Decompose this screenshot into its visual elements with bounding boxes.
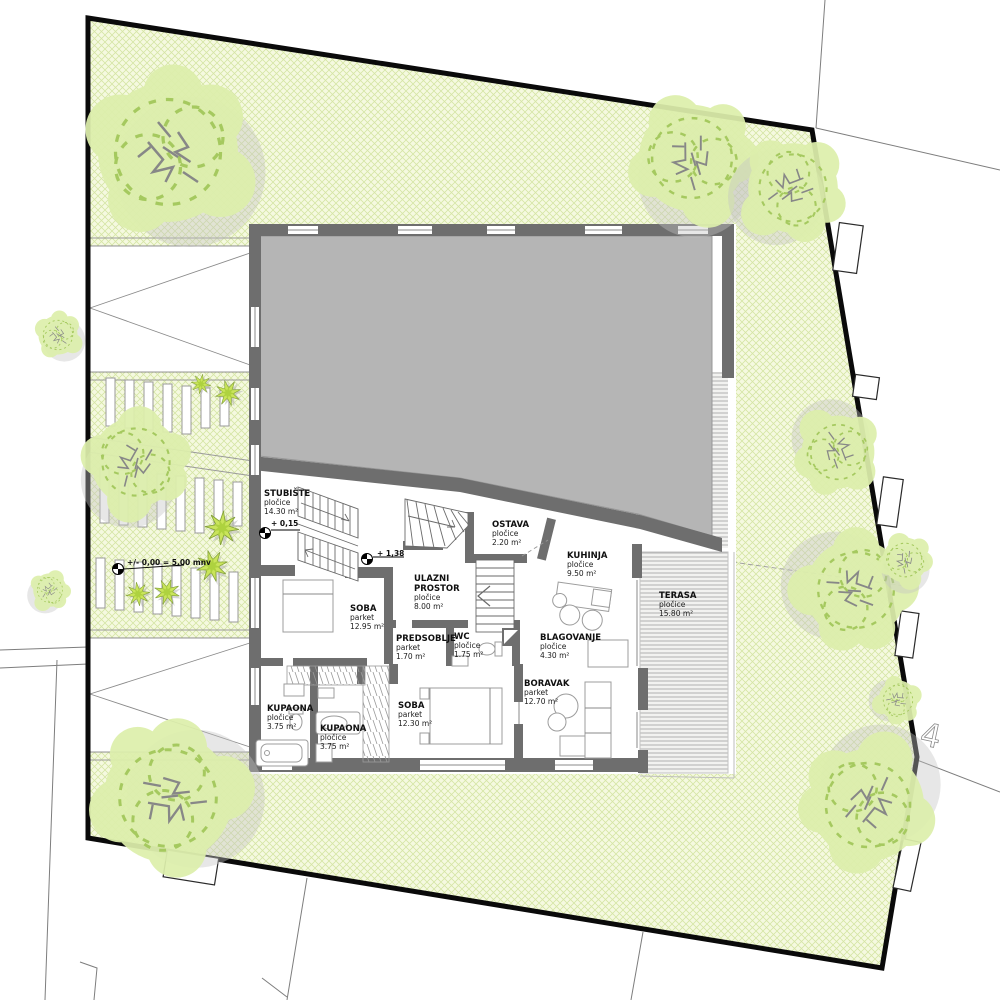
svg-text:ULAZNI: ULAZNI	[414, 574, 449, 584]
neighbor-building-roof	[88, 246, 253, 372]
room-finish: pločice	[264, 498, 291, 507]
svg-text:8.00 m²: 8.00 m²	[414, 602, 443, 611]
svg-text:3.75 m²: 3.75 m²	[267, 722, 296, 731]
svg-text:9.50 m²: 9.50 m²	[567, 569, 596, 578]
svg-text:pločice: pločice	[567, 560, 594, 569]
svg-text:12.95 m²: 12.95 m²	[350, 622, 384, 631]
svg-text:1.70 m²: 1.70 m²	[396, 652, 425, 661]
level-marker-icon	[113, 564, 124, 575]
level-marker-icon	[362, 554, 373, 565]
svg-text:4.30 m²: 4.30 m²	[540, 651, 569, 660]
svg-text:12.30 m²: 12.30 m²	[398, 719, 432, 728]
svg-text:pločice: pločice	[540, 642, 567, 651]
svg-text:2.20 m²: 2.20 m²	[492, 538, 521, 547]
room-area: 14.30 m²	[264, 507, 298, 516]
site-plan-drawing: STUBIŠTE pločice 14.30 m² + 0,15 + 1,38 …	[0, 0, 1000, 1000]
closet-strip	[363, 666, 389, 762]
svg-text:15.80 m²: 15.80 m²	[659, 609, 693, 618]
svg-text:parket: parket	[524, 688, 548, 697]
svg-text:pločice: pločice	[320, 733, 347, 742]
dining-table	[588, 640, 628, 667]
svg-text:1.75 m²: 1.75 m²	[454, 650, 483, 659]
svg-text:pločice: pločice	[414, 593, 441, 602]
level-marker-icon	[260, 528, 271, 539]
svg-text:pločice: pločice	[492, 529, 519, 538]
svg-text:parket: parket	[398, 710, 422, 719]
parcel-number-mark: 4	[917, 715, 945, 756]
svg-text:+ 0,15: + 0,15	[271, 519, 298, 528]
svg-text:pločice: pločice	[454, 641, 481, 650]
svg-text:parket: parket	[350, 613, 374, 622]
building	[249, 224, 736, 778]
understair-box	[502, 628, 520, 646]
svg-text:12.70 m²: 12.70 m²	[524, 697, 558, 706]
svg-text:3.75 m²: 3.75 m²	[320, 742, 349, 751]
floor-plan-canvas: STUBIŠTE pločice 14.30 m² + 0,15 + 1,38 …	[0, 0, 1000, 1000]
svg-text:parket: parket	[396, 643, 420, 652]
svg-text:pločice: pločice	[659, 600, 686, 609]
lower-staircase	[476, 560, 514, 632]
wardrobe-hatch	[287, 666, 365, 685]
svg-text:pločice: pločice	[267, 713, 294, 722]
